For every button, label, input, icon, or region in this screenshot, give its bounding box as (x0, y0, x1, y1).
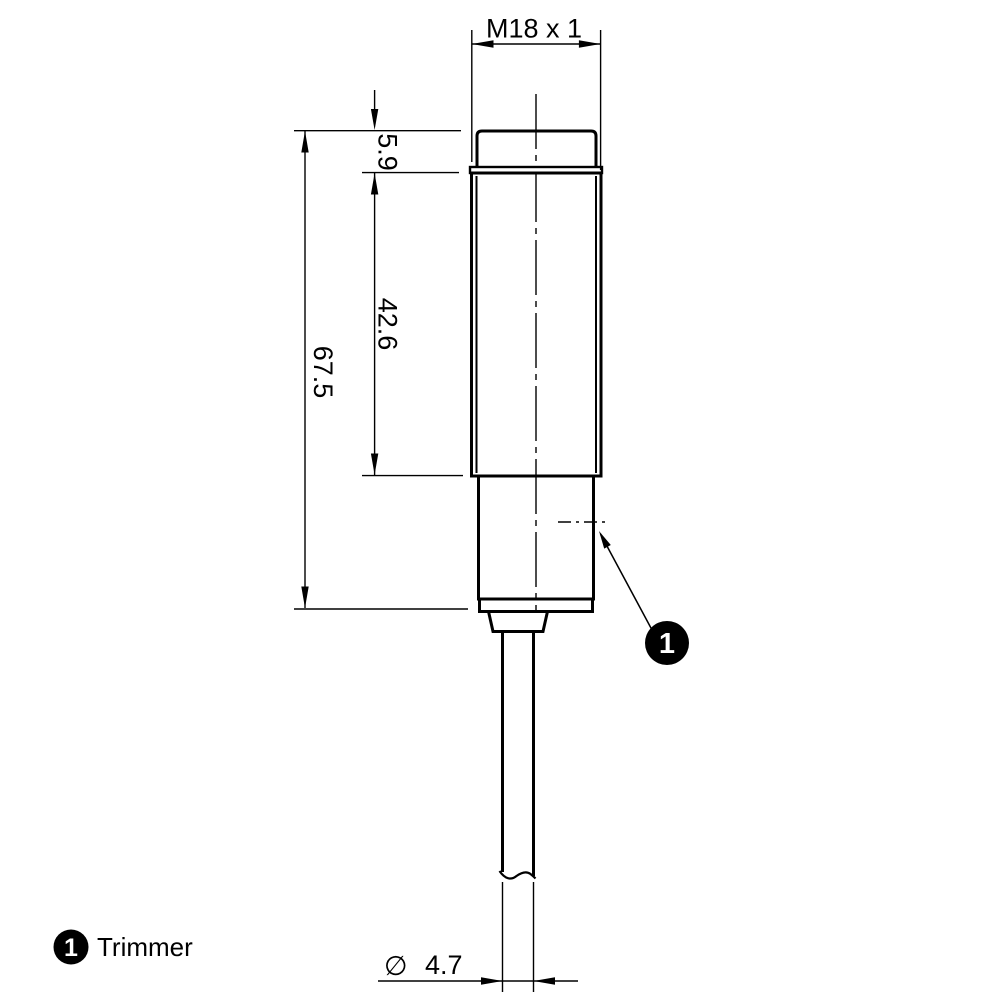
legend-label: Trimmer (97, 932, 193, 962)
thread-spec-label: M18 x 1 (486, 14, 582, 44)
cable-gland (489, 612, 548, 632)
dimensional-drawing-svg: M18 x 1 67.5 42.6 5.9 ∅ 4.7 1 1 Trimmer (0, 0, 1000, 1000)
cable-diameter-label: 4.7 (425, 950, 463, 980)
overall-length-label: 67.5 (308, 346, 338, 399)
arrow-down-icon (371, 454, 378, 475)
callout-leader-line (601, 534, 652, 629)
arrow-right-icon (579, 40, 601, 47)
arrow-right-icon (481, 977, 503, 984)
callout-arrow-icon (599, 531, 611, 549)
legend-number: 1 (64, 934, 78, 962)
arrow-left-icon (534, 977, 556, 984)
arrow-up-icon (301, 131, 308, 153)
arrowheads-group (301, 40, 611, 984)
arrow-down-icon (371, 109, 378, 130)
head-height-label: 5.9 (373, 133, 403, 171)
arrow-down-icon (301, 587, 308, 609)
diameter-symbol-icon: ∅ (384, 951, 408, 981)
callout-number: 1 (659, 628, 675, 660)
cable-break-line (500, 871, 536, 879)
technical-drawing-page: M18 x 1 67.5 42.6 5.9 ∅ 4.7 1 1 Trimmer (0, 0, 1000, 1000)
arrow-up-icon (371, 173, 378, 194)
thread-length-label: 42.6 (373, 298, 403, 351)
